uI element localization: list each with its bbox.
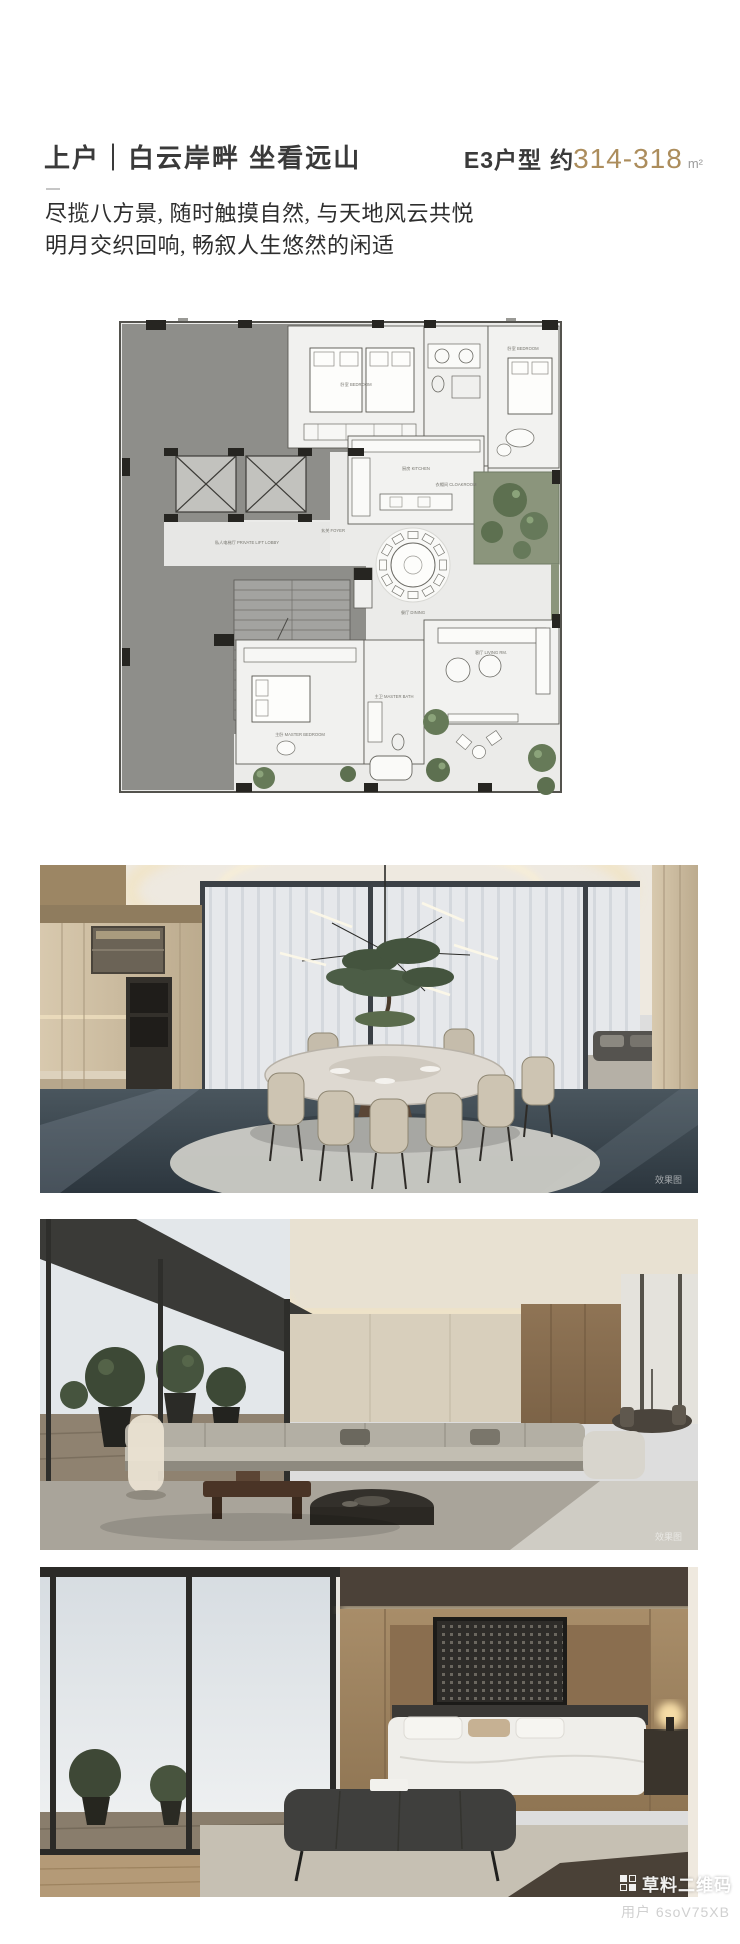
watermark-brand: 草料二维码 (620, 1871, 732, 1896)
label-master-bath: 主卫 MASTER BATH (374, 693, 413, 699)
label-cloakroom: 衣帽间 CLOAKROOM (436, 481, 477, 488)
label-living: 客厅 LIVING RM. (475, 649, 507, 656)
label-master-bedroom: 主卧 MASTER BEDROOM (275, 731, 325, 738)
title-divider (46, 188, 60, 190)
wood-wall-panel (521, 1304, 621, 1424)
unit-type-label: E3户型 (464, 141, 542, 175)
kitchen (348, 436, 484, 524)
floor-plan-drawing: 私人电梯厅 PRIVATE LIFT LOBBY 玄关 FOYER 厨房 KIT… (118, 318, 563, 798)
label-dining: 餐厅 DINING (401, 609, 425, 616)
label-foyer: 玄关 FOYER (321, 527, 345, 534)
wall-artwork (433, 1617, 567, 1706)
approx-label: 约 (550, 141, 573, 175)
photo2-caption: 效果图 (655, 1531, 682, 1542)
fabric-wall-panel (290, 1314, 521, 1422)
area-unit: m² (688, 156, 703, 171)
master-bedroom (236, 640, 364, 764)
listing-page: 上户｜白云岸畔 坐看远山 E3户型 约 314-318 m² 尽揽八方景, 随时… (0, 0, 740, 1944)
intro-text: 尽揽八方景, 随时触摸自然, 与天地风云共悦 明月交织回响, 畅叙人生悠然的闲适 (45, 198, 474, 262)
photo1-caption: 效果图 (655, 1174, 682, 1185)
area-value: 314-318 (573, 143, 683, 175)
page-title: 上户｜白云岸畔 坐看远山 (44, 138, 361, 175)
bed (388, 1705, 650, 1795)
label-bedroom: 卧室 BEDROOM (340, 381, 372, 388)
ceiling-inset (340, 1567, 698, 1609)
sectional-sofa (125, 1423, 645, 1479)
label-bedroom2: 卧室 BEDROOM (507, 345, 539, 352)
photo-bedroom-rendering (40, 1567, 698, 1897)
qr-code-icon (620, 1875, 637, 1892)
intro-line-1: 尽揽八方景, 随时触摸自然, 与天地风云共悦 (45, 198, 474, 230)
photo-living-rendering: 效果图 (40, 1219, 698, 1550)
intro-line-2: 明月交织回响, 畅叙人生悠然的闲适 (45, 230, 474, 262)
watermark-brand-text: 草料二维码 (642, 1871, 732, 1896)
unit-area-info: E3户型 约 314-318 m² (464, 141, 703, 175)
label-kitchen: 厨房 KITCHEN (402, 465, 430, 472)
master-bathroom (364, 640, 424, 780)
dining-table (376, 528, 450, 602)
watermark-user: 用户 6soV75XB (621, 1902, 730, 1922)
wall-chunk (354, 568, 372, 580)
photo-dining-rendering: 效果图 (40, 865, 698, 1193)
floor-lamp (126, 1415, 166, 1500)
floor-plan: 私人电梯厅 PRIVATE LIFT LOBBY 玄关 FOYER 厨房 KIT… (118, 318, 563, 798)
bedroom-top (288, 326, 424, 448)
label-lift-lobby: 私人电梯厅 PRIVATE LIFT LOBBY (215, 539, 279, 546)
